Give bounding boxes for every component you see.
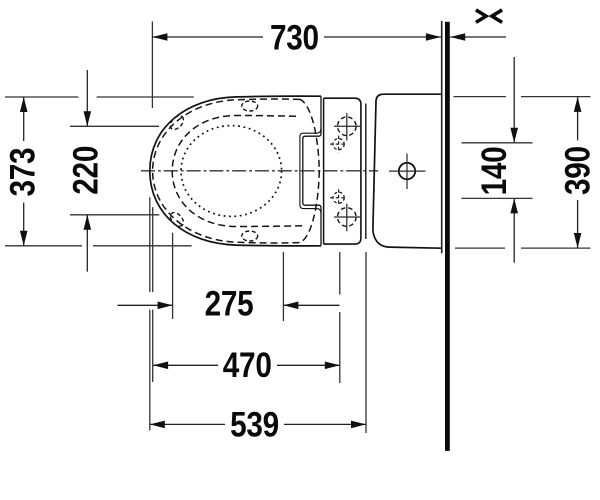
svg-text:470: 470: [223, 346, 272, 385]
svg-text:140: 140: [475, 147, 514, 196]
svg-text:730: 730: [270, 18, 319, 57]
svg-text:373: 373: [3, 148, 42, 197]
svg-text:539: 539: [230, 405, 279, 444]
svg-text:275: 275: [205, 284, 254, 323]
svg-text:390: 390: [558, 146, 597, 195]
svg-text:220: 220: [66, 146, 105, 195]
